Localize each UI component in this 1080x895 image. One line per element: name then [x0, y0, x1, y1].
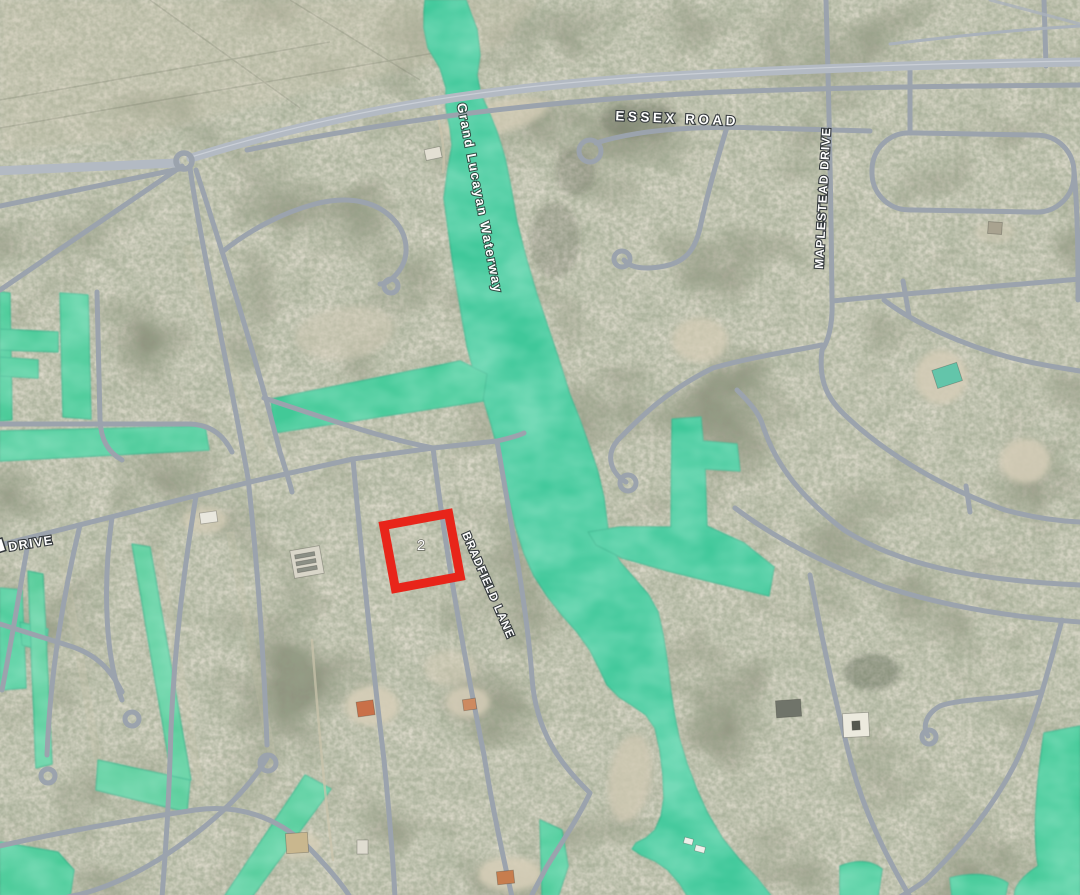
- satellite-map-image: ESSEX ROAD Grand Lucayan Waterway MAPLES…: [0, 0, 1080, 895]
- satellite-map-viewport[interactable]: ESSEX ROAD Grand Lucayan Waterway MAPLES…: [0, 0, 1080, 895]
- parcel-number-label: 2: [417, 537, 425, 554]
